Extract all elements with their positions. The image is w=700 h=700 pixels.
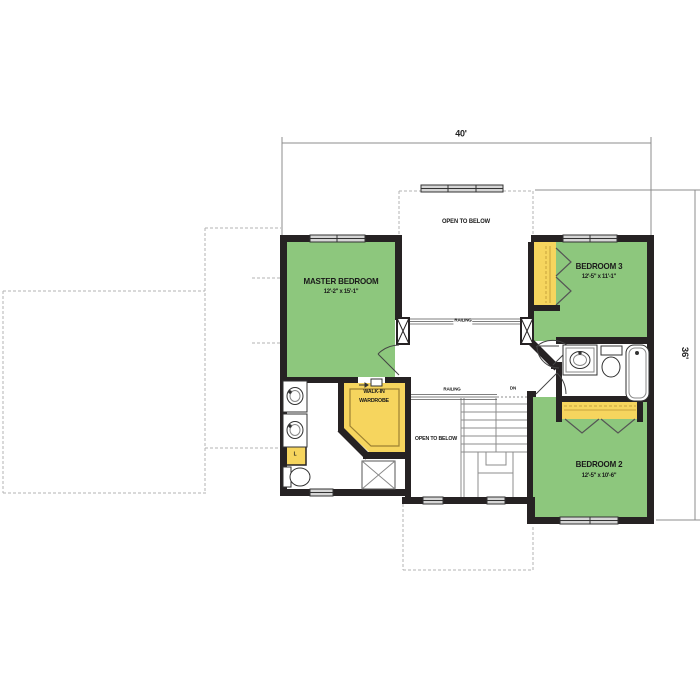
wardrobe-label-line2: WARDROBE <box>359 399 389 405</box>
dimension-width-label: 40' <box>455 129 467 139</box>
toilet-hall <box>601 346 622 377</box>
vanity-sink-2 <box>283 414 307 447</box>
hall-bath-fixtures <box>563 345 649 401</box>
vanity-sink-hall <box>563 345 597 375</box>
wardrobe-entry-marker <box>371 379 382 386</box>
window-master-bedroom <box>310 235 365 242</box>
open-to-below-lower-label: OPEN TO BELOW <box>415 437 457 443</box>
master-bedroom-area <box>287 242 395 377</box>
window-bedroom3 <box>563 235 617 242</box>
bathtub <box>626 345 649 401</box>
master-bedroom-size: 12'-2" x 15'-1" <box>324 289 358 295</box>
window-master-bath <box>310 489 333 496</box>
railing-upper-label: RAILING <box>453 320 472 325</box>
wardrobe-label-line1: WALK-IN <box>363 390 384 396</box>
open-to-below-upper-label: OPEN TO BELOW <box>442 219 490 225</box>
shower <box>362 461 395 489</box>
dimension-depth-label: 36' <box>679 347 689 359</box>
bedroom2-size: 12'-5" x 10'-6" <box>582 473 616 479</box>
vanity-sink-1 <box>283 381 307 412</box>
linen-closet-label: L <box>294 452 297 457</box>
window-hall-right <box>487 497 505 504</box>
floor-plan-drawing <box>0 0 700 700</box>
stairs-down-label: DN <box>510 388 516 393</box>
bedroom2-label: BEDROOM 2 <box>576 460 623 469</box>
bedroom3-size: 12'-5" x 11'-1" <box>582 274 616 280</box>
railing-lower-label: RAILING <box>442 389 461 394</box>
toilet-master <box>283 467 310 487</box>
roof-outline-dashed <box>3 191 533 570</box>
bedroom-3-closet <box>534 242 556 305</box>
railing-lower <box>411 395 497 400</box>
bedroom3-label: BEDROOM 3 <box>576 262 623 271</box>
stair-treads <box>461 404 527 452</box>
stair-stringer <box>461 398 464 498</box>
window-hall-left <box>423 497 443 504</box>
railings <box>409 319 521 400</box>
window-bedroom2 <box>560 517 618 524</box>
window-open-to-below <box>421 185 503 192</box>
floor-plan: 40' 36' OPEN TO BELOW OPEN TO BELOW MAST… <box>0 0 700 700</box>
stairs-down <box>461 397 527 498</box>
master-bedroom-label: MASTER BEDROOM <box>303 277 378 286</box>
